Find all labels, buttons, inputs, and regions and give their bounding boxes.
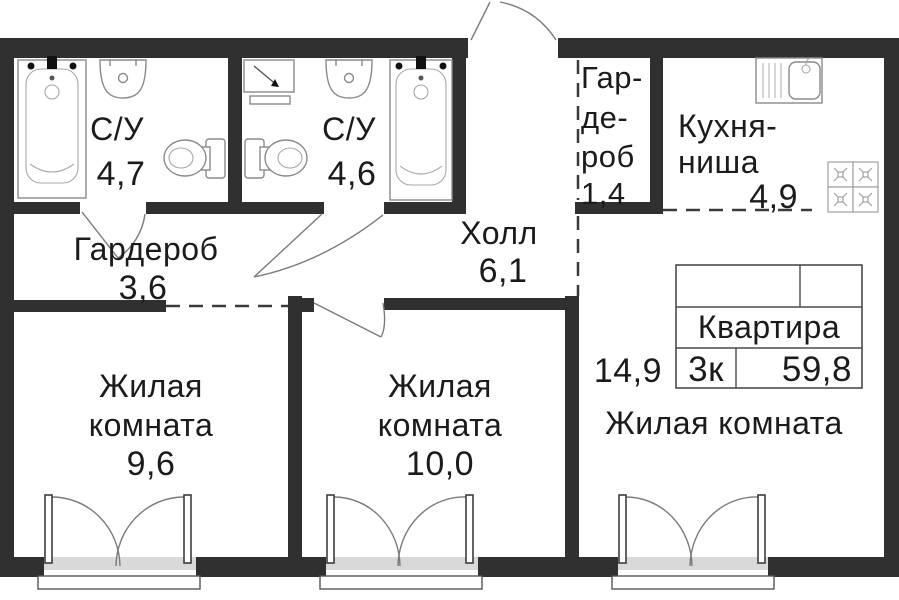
apartment-rooms-count: 3к: [688, 350, 724, 389]
hall-label: Холл: [460, 215, 537, 251]
living1-area: 9,6: [127, 445, 176, 483]
wardrobe-small-label: Гар-: [581, 60, 643, 95]
toilet-icon: [164, 139, 225, 178]
living3-area: 14,9: [594, 352, 662, 390]
living2-label: Жилая: [388, 368, 492, 404]
sink-icon: [100, 60, 146, 98]
toilet-icon: [245, 139, 307, 178]
kitchen-sink-icon: [756, 58, 822, 103]
living1-label: комната: [89, 407, 214, 443]
balcony-door-icon: [320, 495, 482, 589]
bathtub-icon: [390, 56, 452, 200]
wardrobe-area: 3,6: [119, 269, 168, 307]
apartment-total-area: 59,8: [782, 350, 852, 389]
balcony-door-icon: [38, 495, 200, 589]
washing-machine-icon: [244, 60, 294, 104]
bathroom1-label: С/У: [90, 111, 144, 147]
living2-area: 10,0: [406, 445, 474, 483]
living2-label: комната: [378, 407, 503, 443]
living3-label: Жилая комната: [605, 405, 843, 441]
hall-area: 6,1: [479, 252, 528, 290]
kitchen-label: ниша: [678, 144, 759, 180]
bathroom2-label: С/У: [322, 111, 376, 147]
apartment-info-table: Квартира 3к 59,8: [676, 265, 862, 389]
living1-label: Жилая: [99, 368, 203, 404]
floor-plan: С/У 4,7 С/У 4,6 Гар- де- роб 1,4 Кухня- …: [0, 0, 899, 600]
bathroom2-door-icon: [254, 214, 383, 277]
bathroom1-area: 4,7: [97, 155, 146, 193]
balcony-door-icon: [612, 495, 774, 589]
kitchen-label: Кухня-: [678, 108, 777, 144]
wardrobe-small-area: 1,4: [581, 176, 626, 211]
bathroom2-area: 4,6: [328, 155, 377, 193]
living2-door-icon: [314, 303, 385, 337]
kitchen-area: 4,9: [749, 178, 798, 216]
wardrobe-small-label: роб: [581, 139, 635, 174]
wardrobe-label: Гардероб: [74, 231, 219, 267]
entrance-door-icon: [471, 2, 556, 40]
sink-icon: [326, 60, 372, 98]
bathtub-icon: [18, 56, 86, 198]
stove-icon: [828, 162, 878, 212]
wardrobe-small-label: де-: [581, 100, 628, 135]
apartment-title: Квартира: [698, 309, 840, 345]
